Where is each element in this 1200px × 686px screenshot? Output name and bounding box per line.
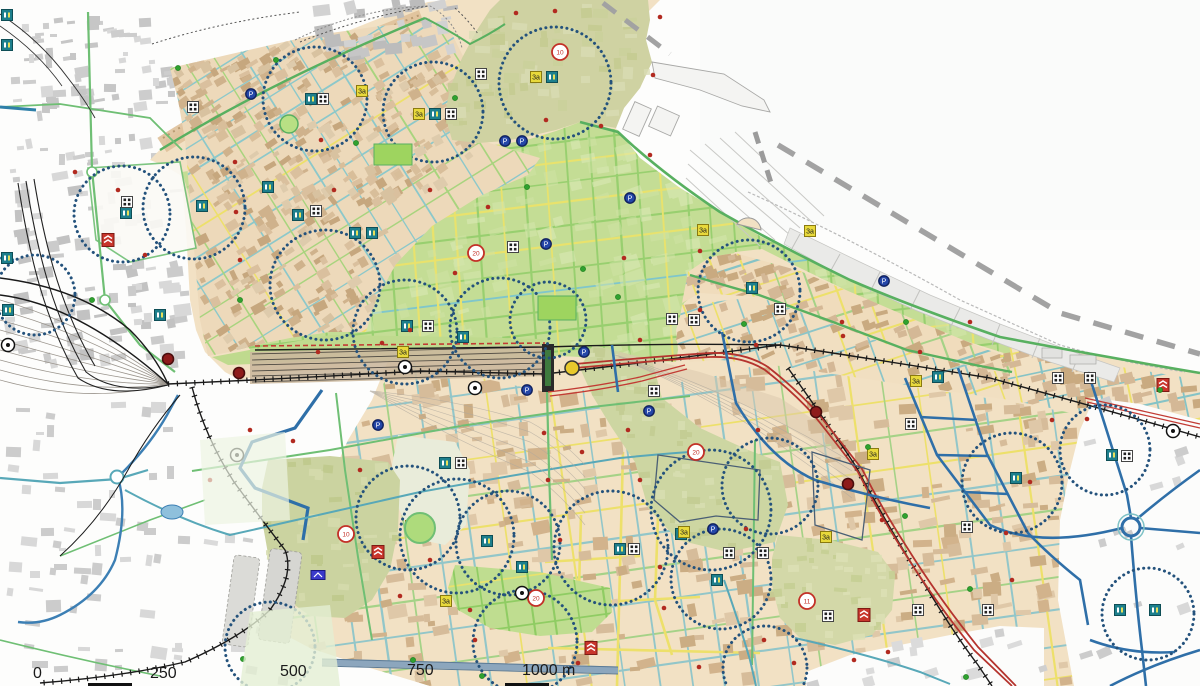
svg-text:P: P xyxy=(503,139,508,146)
svg-text:3a: 3a xyxy=(399,350,407,357)
svg-text:P: P xyxy=(376,423,381,430)
svg-text:20: 20 xyxy=(472,251,480,258)
svg-text:P: P xyxy=(882,279,887,286)
svg-text:11: 11 xyxy=(804,599,811,606)
svg-text:3a: 3a xyxy=(912,379,920,386)
svg-text:0: 0 xyxy=(33,665,42,682)
svg-text:P: P xyxy=(525,388,530,395)
svg-text:P: P xyxy=(582,350,587,357)
svg-text:10: 10 xyxy=(556,50,564,57)
svg-text:3a: 3a xyxy=(358,89,366,96)
svg-text:750: 750 xyxy=(407,662,434,679)
svg-text:3a: 3a xyxy=(822,535,830,542)
svg-text:3a: 3a xyxy=(869,452,877,459)
svg-text:P: P xyxy=(544,242,549,249)
svg-text:3a: 3a xyxy=(532,75,540,82)
svg-text:3a: 3a xyxy=(442,599,450,606)
svg-text:3a: 3a xyxy=(699,228,707,235)
svg-text:3a: 3a xyxy=(806,229,814,236)
svg-text:P: P xyxy=(647,409,652,416)
svg-text:3a: 3a xyxy=(415,112,423,119)
svg-text:500: 500 xyxy=(280,663,307,680)
svg-text:10: 10 xyxy=(342,532,350,539)
svg-text:250: 250 xyxy=(150,665,177,682)
svg-text:3a: 3a xyxy=(680,530,688,537)
svg-text:20: 20 xyxy=(532,596,540,603)
svg-text:P: P xyxy=(628,196,633,203)
svg-text:1000 m: 1000 m xyxy=(522,662,575,679)
svg-text:20: 20 xyxy=(692,450,700,457)
svg-text:P: P xyxy=(520,139,525,146)
svg-text:P: P xyxy=(711,527,716,534)
svg-text:P: P xyxy=(249,92,254,99)
